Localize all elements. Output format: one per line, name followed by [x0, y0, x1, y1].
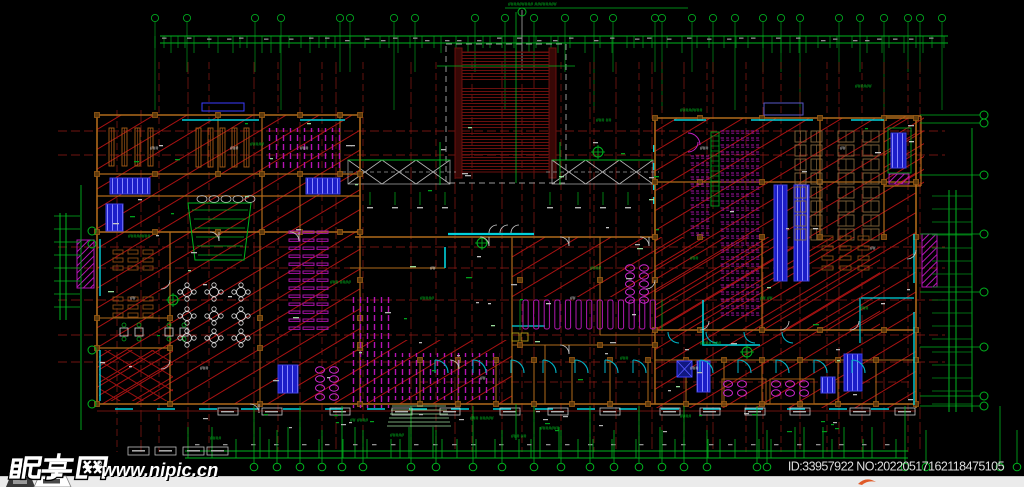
- svg-text:##: ##: [480, 376, 486, 382]
- svg-text:########: ########: [128, 234, 150, 240]
- svg-text:#####: #####: [420, 296, 434, 302]
- svg-text:#####: #####: [250, 142, 264, 148]
- svg-text:## ##: ## ##: [760, 296, 773, 302]
- svg-text:####: ####: [680, 414, 691, 420]
- svg-text:www.nipic.cn: www.nipic.cn: [102, 459, 219, 480]
- svg-text:##: ##: [430, 266, 436, 272]
- svg-text:###: ###: [620, 356, 629, 362]
- svg-text:###: ###: [690, 256, 699, 262]
- svg-text:###: ###: [300, 146, 309, 152]
- svg-text:### ##: ### ##: [596, 118, 612, 124]
- svg-text:##: ##: [840, 146, 846, 152]
- svg-text:### #####: ### #####: [470, 416, 494, 422]
- svg-text:#####: #####: [390, 433, 404, 439]
- svg-text:#### ###: #### ###: [700, 341, 721, 347]
- svg-text:###: ###: [230, 146, 239, 152]
- svg-text:### ####: ### ####: [330, 280, 351, 286]
- svg-text:ID:33957922 NO:202205171621184: ID:33957922 NO:20220517162118475105: [788, 460, 1005, 474]
- svg-text:########: ########: [680, 108, 702, 114]
- svg-text:##: ##: [130, 296, 136, 302]
- svg-text:##: ##: [570, 296, 576, 302]
- svg-text:###: ###: [200, 366, 209, 372]
- svg-text:###: ###: [150, 146, 159, 152]
- svg-text:######: ######: [855, 84, 872, 90]
- svg-text:###: ###: [700, 146, 709, 152]
- svg-text:## ####: ## ####: [350, 418, 368, 424]
- svg-text:##: ##: [870, 246, 876, 252]
- svg-text:######### ########: ######### ########: [508, 2, 557, 8]
- svg-text:###: ###: [860, 306, 869, 312]
- svg-text:###: ###: [690, 366, 699, 372]
- svg-text:####: ####: [590, 266, 601, 272]
